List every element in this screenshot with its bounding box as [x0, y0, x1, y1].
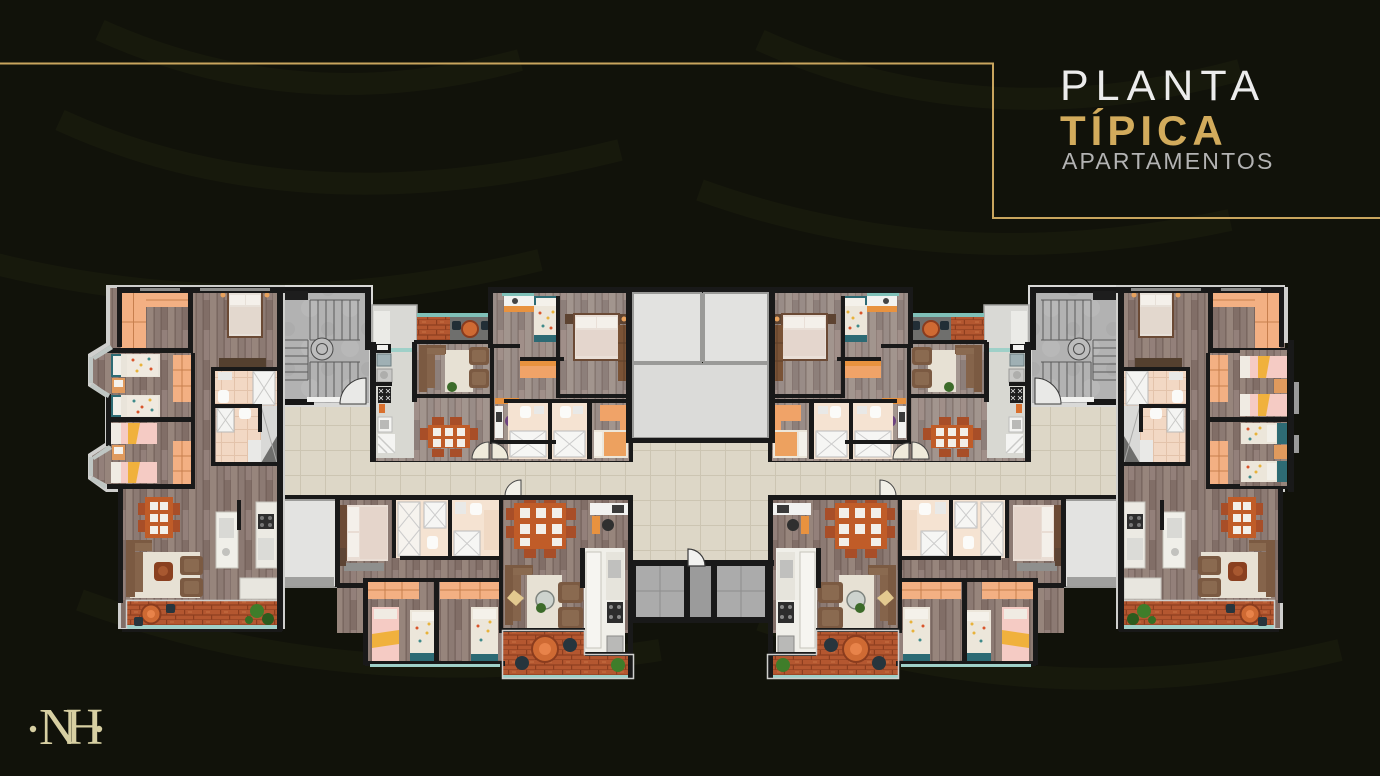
svg-text:APARTAMENTOS: APARTAMENTOS — [1062, 148, 1275, 174]
svg-text:PLANTA: PLANTA — [1060, 62, 1266, 110]
svg-text:TÍPICA: TÍPICA — [1060, 107, 1228, 154]
